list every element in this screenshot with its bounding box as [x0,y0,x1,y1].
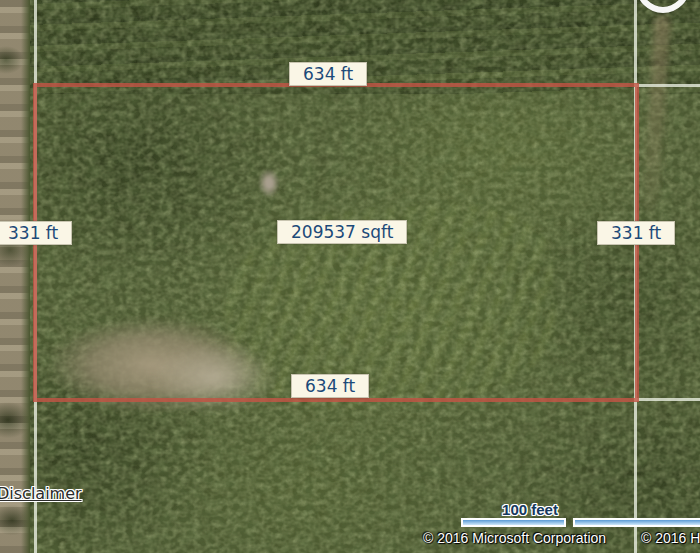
dimension-label-right: 331 ft [597,221,675,245]
dirt-road-left [0,0,30,553]
copyright-right-partial: © 2016 H [641,530,700,546]
scale-bar-right-segment [573,518,700,527]
dimension-label-top: 634 ft [289,62,367,86]
scale-bar-left-segment [461,518,566,527]
area-label: 209537 sqft [277,220,407,244]
dimension-label-left: 331 ft [0,221,72,245]
copyright-microsoft: © 2016 Microsoft Corporation [423,530,606,546]
dimension-label-bottom: 634 ft [291,374,369,398]
disclaimer-link[interactable]: Disclaimer [0,484,82,503]
parcel-boundary-line-bottom-right [634,398,700,401]
scale-label: 100 feet [470,501,590,518]
map-viewport[interactable]: 634 ft 331 ft 331 ft 209537 sqft 634 ft … [0,0,700,553]
parcel-boundary-line-top-right [634,84,700,87]
